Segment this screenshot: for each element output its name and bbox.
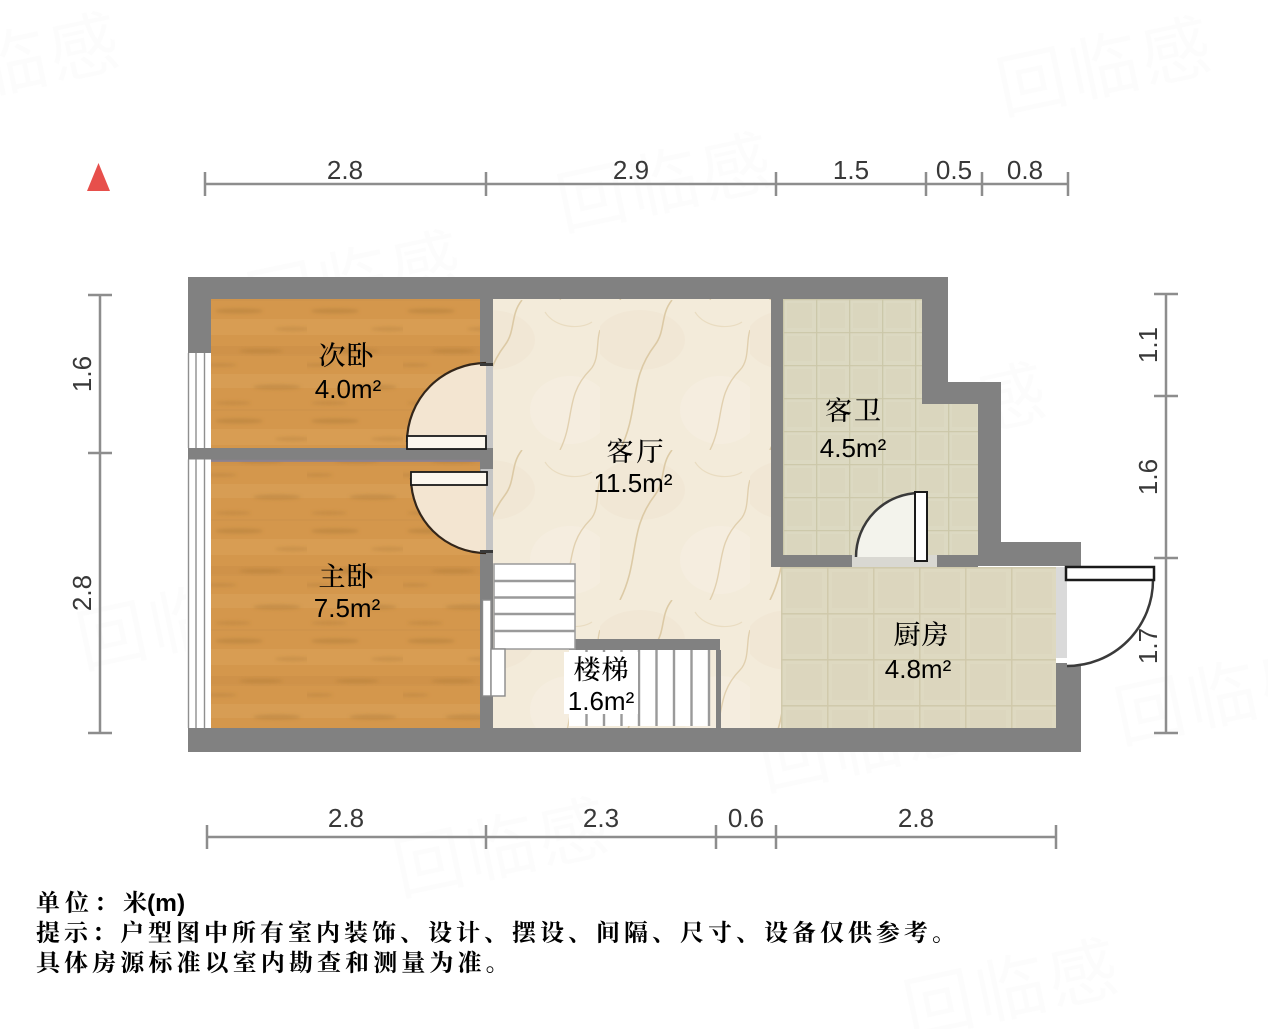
svg-text:2.8: 2.8 xyxy=(328,803,364,833)
svg-text:2.3: 2.3 xyxy=(583,803,619,833)
svg-text:0.8: 0.8 xyxy=(1007,155,1043,185)
svg-text:0.5: 0.5 xyxy=(936,155,972,185)
svg-text:(m): (m) xyxy=(147,890,185,917)
svg-text:11.5m²: 11.5m² xyxy=(594,468,673,498)
svg-text:1.6: 1.6 xyxy=(67,356,97,392)
svg-text:1.6m²: 1.6m² xyxy=(568,686,635,716)
svg-text:4.8m²: 4.8m² xyxy=(885,654,952,684)
svg-text:2.8: 2.8 xyxy=(327,155,363,185)
svg-text:1.7: 1.7 xyxy=(1133,628,1163,664)
svg-text:1.5: 1.5 xyxy=(833,155,869,185)
svg-text:1.6: 1.6 xyxy=(1133,459,1163,495)
svg-text:2.8: 2.8 xyxy=(898,803,934,833)
svg-text:4.0m²: 4.0m² xyxy=(315,374,382,404)
svg-text:2.8: 2.8 xyxy=(67,575,97,611)
svg-text:2.9: 2.9 xyxy=(613,155,649,185)
svg-text:1.1: 1.1 xyxy=(1133,327,1163,363)
svg-text:0.6: 0.6 xyxy=(728,803,764,833)
svg-text:7.5m²: 7.5m² xyxy=(314,593,381,623)
svg-text:4.5m²: 4.5m² xyxy=(820,433,887,463)
